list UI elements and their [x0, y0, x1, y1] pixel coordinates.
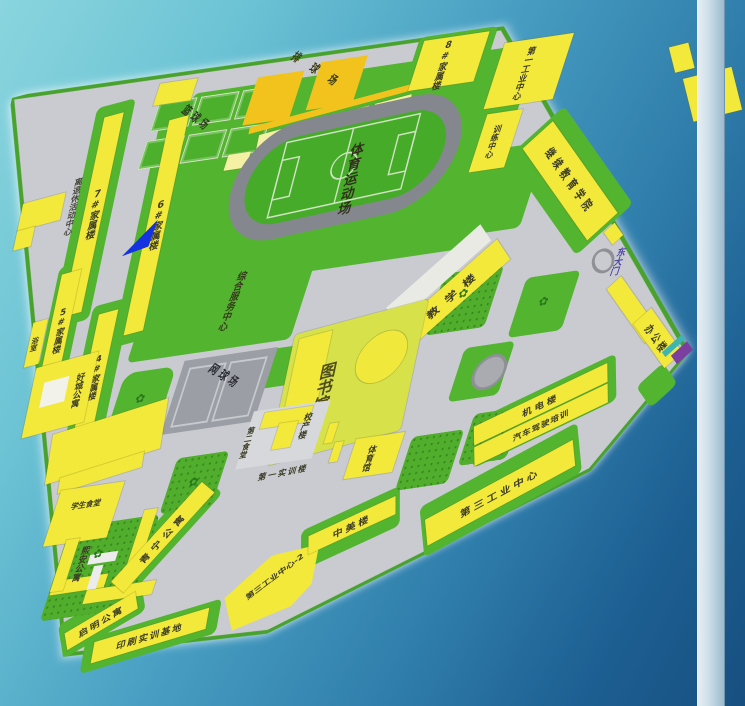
right-scrollbar[interactable]: [697, 0, 725, 706]
campus-map[interactable]: 篮球场 排球场 看台 体育运动场 7#家属楼 6#家属楼 5#家属: [0, 0, 745, 706]
map-viewer-background: 第二工业中心: [0, 0, 745, 706]
